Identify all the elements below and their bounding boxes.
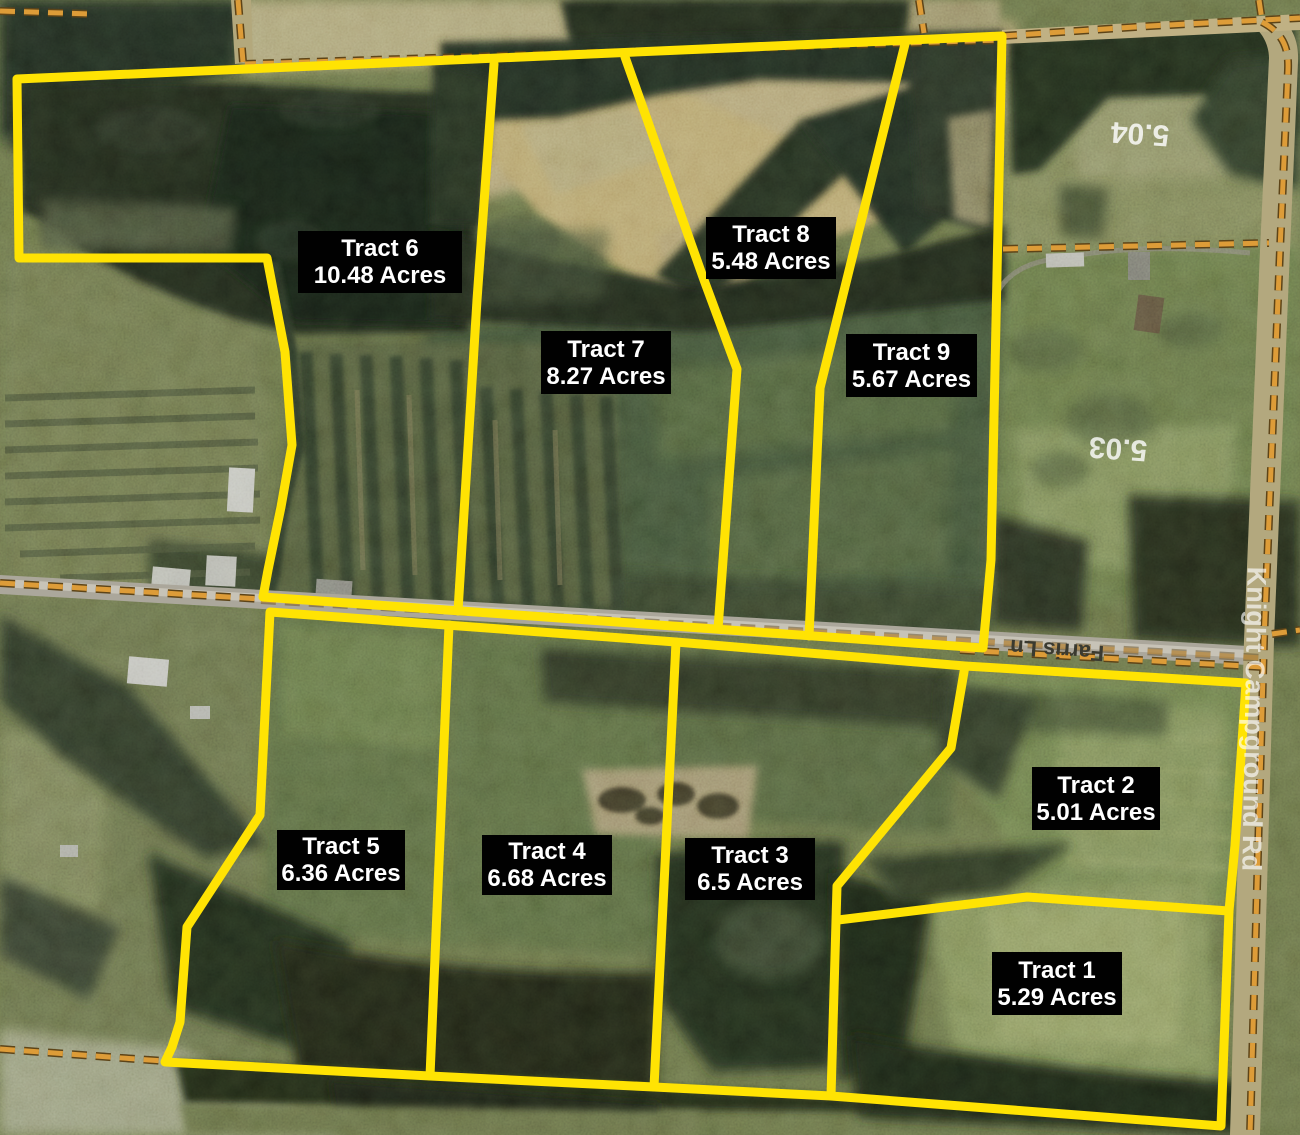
svg-text:5.04: 5.04 [1109,115,1170,152]
svg-text:Knight Campground Rd: Knight Campground Rd [1236,567,1271,872]
svg-text:5.03: 5.03 [1088,430,1149,467]
